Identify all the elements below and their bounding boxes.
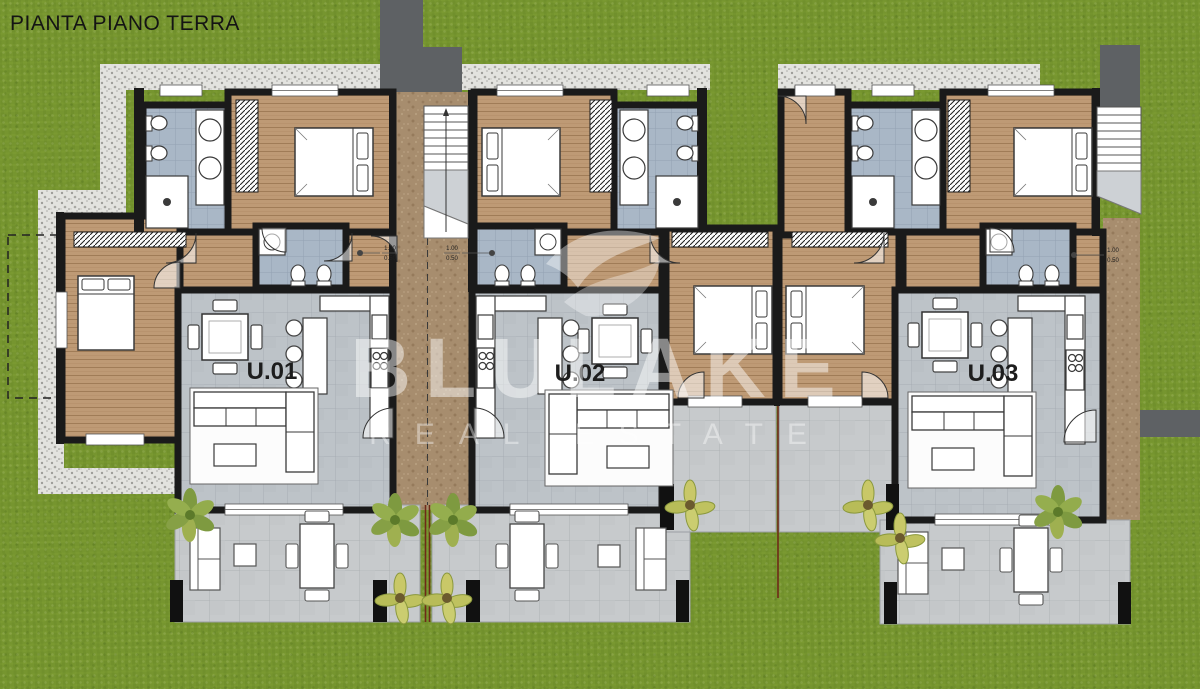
unit-label-u01: U.01	[247, 358, 298, 385]
hall-entry-right	[781, 92, 848, 235]
sofa	[908, 392, 1036, 488]
dim-value-bottom: 0.50	[446, 256, 458, 262]
dim-value-top: 1.00	[1107, 248, 1119, 254]
bed	[78, 276, 134, 350]
bed	[694, 286, 772, 354]
bed	[482, 128, 560, 196]
floor-plan-canvas: 1.00 0.50 1.00 0.50 1.00 0.50 U.01 U.02 …	[0, 0, 1200, 689]
right-staircase	[1097, 107, 1141, 214]
sofa	[545, 390, 673, 486]
sofa	[190, 388, 318, 484]
dim-value-top: 1.00	[384, 246, 396, 252]
dim-value-bottom: 0.50	[1107, 258, 1119, 264]
dim-value-top: 1.00	[446, 246, 458, 252]
page-title: PIANTA PIANO TERRA	[10, 12, 240, 36]
outdoor-table	[234, 544, 256, 566]
floor-plan-drawing: 1.00 0.50 1.00 0.50 1.00 0.50 U.01 U.02 …	[0, 0, 1200, 689]
unit-label-u02: U.02	[555, 360, 606, 387]
outdoor-sofa	[636, 528, 666, 590]
bed	[786, 286, 864, 354]
bed	[295, 128, 373, 196]
outdoor-table	[598, 545, 620, 567]
outdoor-table	[942, 548, 964, 570]
central-staircase	[424, 106, 468, 238]
bed	[1014, 128, 1092, 196]
dim-value-bottom: 0.50	[384, 256, 396, 262]
unit-label-u03: U.03	[968, 360, 1019, 387]
